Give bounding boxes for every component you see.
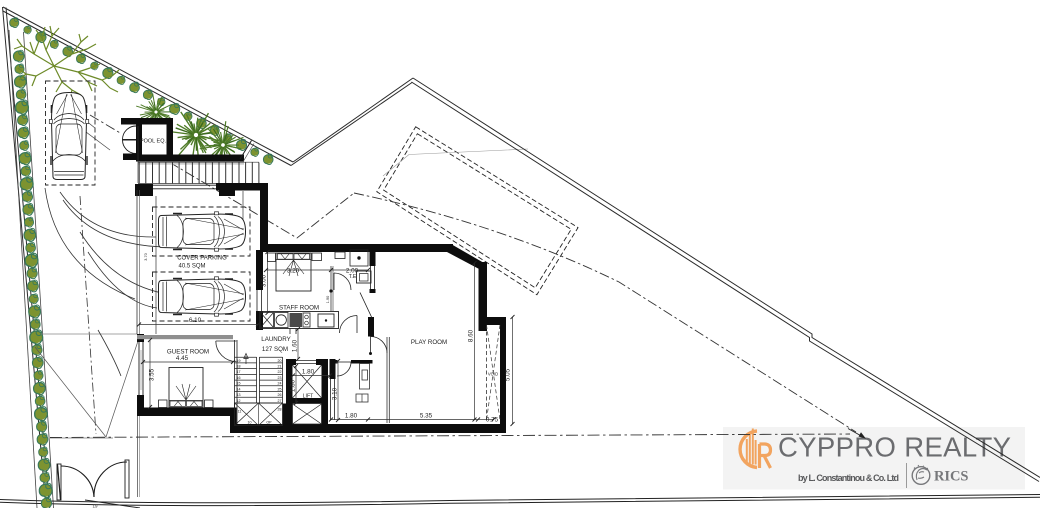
svg-text:2.00: 2.00	[346, 267, 359, 274]
svg-text:28: 28	[278, 408, 282, 412]
svg-text:1.80: 1.80	[345, 413, 358, 420]
svg-text:3.00: 3.00	[261, 274, 268, 287]
svg-text:1.80: 1.80	[302, 369, 315, 376]
svg-text:1.80: 1.80	[290, 379, 297, 392]
svg-text:3.55: 3.55	[149, 368, 156, 381]
svg-text:27: 27	[278, 399, 282, 403]
svg-text:3.20: 3.20	[287, 267, 300, 274]
svg-text:6.10: 6.10	[189, 317, 202, 324]
svg-text:19: 19	[92, 504, 98, 508]
svg-text:POOL EQ.: POOL EQ.	[140, 139, 167, 145]
svg-text:10: 10	[248, 421, 252, 425]
svg-text:PLAY ROOM: PLAY ROOM	[411, 339, 447, 346]
svg-text:1.60: 1.60	[292, 339, 299, 352]
svg-text:16: 16	[237, 376, 241, 380]
svg-text:11: 11	[238, 410, 242, 414]
svg-text:0.75: 0.75	[486, 417, 499, 424]
svg-text:CYPPRO REALTY: CYPPRO REALTY	[778, 432, 1012, 463]
svg-text:26: 26	[278, 393, 282, 397]
svg-text:17: 17	[237, 370, 241, 374]
svg-text:12: 12	[237, 399, 241, 403]
svg-text:24: 24	[278, 382, 282, 386]
svg-text:18: 18	[237, 365, 241, 369]
svg-text:LAUNDRY: LAUNDRY	[261, 336, 290, 343]
svg-text:5.05: 5.05	[505, 368, 512, 381]
svg-text:COVER PARKING: COVER PARKING	[177, 256, 227, 262]
svg-text:5.35: 5.35	[420, 413, 433, 420]
svg-text:20: 20	[278, 359, 282, 363]
svg-text:19: 19	[237, 359, 241, 363]
svg-text:23: 23	[278, 376, 282, 380]
svg-text:15: 15	[237, 382, 241, 386]
svg-text:1.90: 1.90	[326, 296, 330, 303]
svg-text:21: 21	[278, 365, 282, 369]
svg-text:LIFT: LIFT	[303, 394, 314, 400]
svg-text:127 SQM: 127 SQM	[262, 346, 288, 353]
svg-text:3.70: 3.70	[144, 253, 148, 260]
svg-text:OP: OP	[266, 421, 272, 425]
svg-text:by L. Constantinou & Co. Ltd: by L. Constantinou & Co. Ltd	[798, 473, 899, 483]
svg-text:3.10: 3.10	[332, 387, 339, 400]
svg-text:RICS: RICS	[934, 469, 969, 485]
svg-text:8.60: 8.60	[468, 329, 475, 342]
svg-text:T.E: T.E	[349, 274, 357, 280]
svg-text:4.45: 4.45	[176, 355, 189, 362]
svg-text:40.5 SQM: 40.5 SQM	[178, 264, 205, 270]
svg-text:STAFF ROOM: STAFF ROOM	[279, 305, 319, 312]
svg-text:13: 13	[237, 393, 241, 397]
svg-text:25: 25	[278, 387, 282, 391]
svg-text:22: 22	[278, 370, 282, 374]
svg-text:14: 14	[237, 387, 241, 391]
svg-text:VOID: VOID	[488, 372, 498, 377]
